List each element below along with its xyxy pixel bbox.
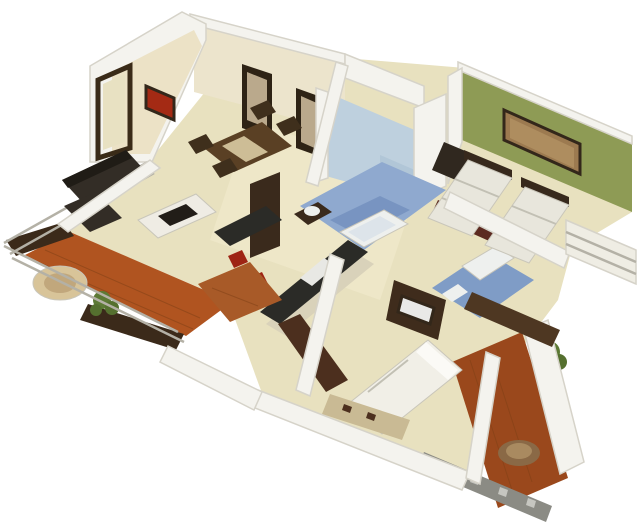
potted-plant — [90, 304, 102, 316]
floor-plan-render — [0, 0, 640, 529]
entrance-door-opening — [103, 74, 125, 150]
floor-plan-image — [0, 0, 640, 529]
round-table-top — [506, 443, 532, 459]
bathroom1-sink — [304, 206, 320, 216]
tall-unit-1-panel — [247, 72, 267, 128]
